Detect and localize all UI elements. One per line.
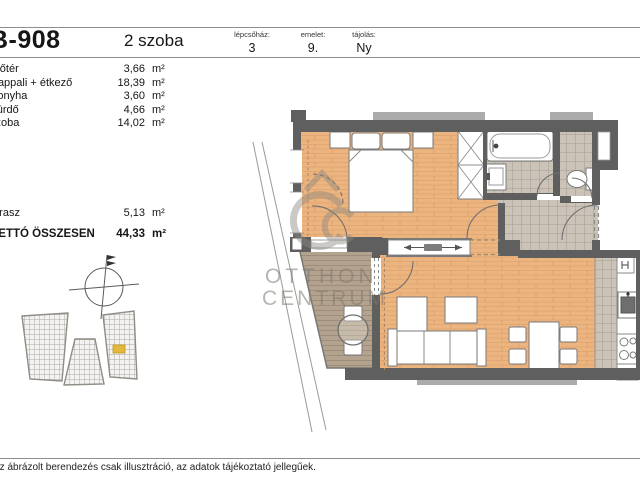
bed-mattress [349,150,413,212]
pillow-left [352,133,380,149]
dining-chair [509,349,526,364]
nightstand-right [413,132,433,148]
building-left [22,313,68,381]
dining-table [529,322,559,369]
floorplan-page: B-908 2 szoba lépcsőház:3emelet:9.tájolá… [0,0,640,480]
watermark-text-centrum: CENTRUM [262,287,388,311]
terrace-table [338,315,368,345]
compass-icon [69,255,139,319]
kitchen-sink [618,292,638,318]
kitchen-floor [595,257,617,380]
wardrobe [458,131,484,199]
dining-chair [560,349,577,364]
watermark-text-otthon: OTTHON [265,265,378,289]
unit-highlight [113,345,125,353]
disclaimer-text: Az ábrázolt berendezés csak illusztráció… [0,462,316,473]
floor-plan-drawing [0,0,640,480]
coffee-table [445,297,477,323]
dining-chair [560,327,577,342]
site-key-map [22,311,137,385]
dining-chair [509,327,526,342]
sideboard-sliding-door [388,240,470,255]
pillow-right [382,133,410,149]
nightstand-left [330,132,350,148]
doorway-floor [470,240,500,255]
stove [617,334,638,364]
bathtub [487,131,553,161]
washbasin [486,164,506,190]
building-middle [64,339,104,385]
